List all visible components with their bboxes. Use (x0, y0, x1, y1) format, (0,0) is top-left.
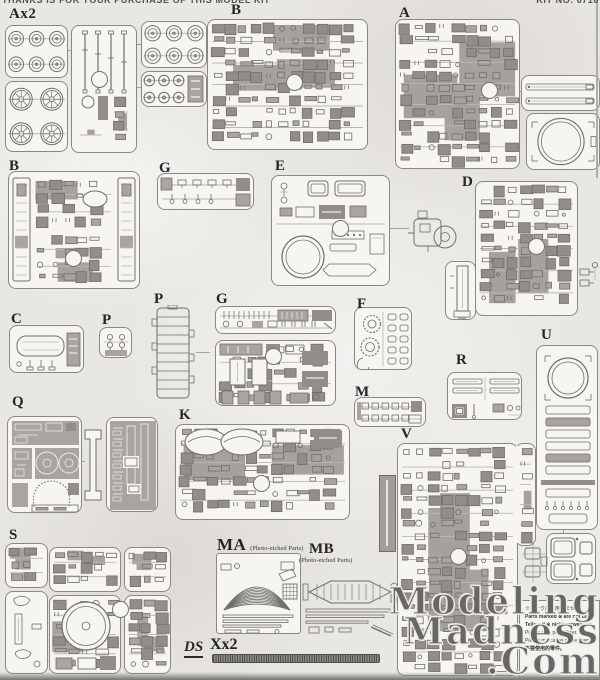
sprue-box-k (175, 424, 350, 520)
note-line: Parts marked ※ are not used. (525, 613, 595, 621)
sprue-box-g-small (157, 173, 254, 210)
parts-drawing (522, 76, 599, 110)
ds-track-logo: DS (184, 640, 203, 658)
photo-etch-fret-ma (216, 553, 301, 634)
scan-edge-artifact (596, 0, 598, 178)
parts-drawing (6, 544, 47, 587)
mb-subtitle: (Photo-etched Parts) (299, 557, 352, 564)
parts-drawing (547, 534, 595, 583)
parts-drawing (216, 307, 335, 333)
parts-drawing (142, 22, 206, 67)
runner-junction (253, 475, 270, 492)
barrel-sleeve-part (379, 475, 396, 552)
sprue-label-mb: MB (309, 541, 334, 558)
sprue-box-p-small (99, 327, 132, 358)
i-beam-part (82, 428, 104, 502)
instruction-sheet-page: THANKS IS FOR YOUR PURCHASE OF THIS MODE… (0, 0, 600, 680)
runner-junction (481, 82, 498, 99)
parts-drawing (9, 172, 139, 288)
parts-drawing (272, 176, 389, 285)
parts-drawing (537, 346, 597, 529)
sprue-label-m: M (355, 384, 370, 401)
turret-assembly-drawing (408, 206, 460, 258)
sprue-label-k: K (179, 407, 191, 424)
runner-junction (65, 250, 82, 267)
sprue-label-a: A (399, 5, 410, 22)
runner-line (388, 228, 409, 229)
parts-drawing (100, 328, 131, 357)
runner-junction (286, 74, 303, 91)
parts-drawing (408, 206, 460, 258)
sprue-label-p-small: P (102, 312, 112, 329)
runner-junction (112, 601, 129, 618)
sprue-box-a-turret-ring (526, 113, 600, 170)
sprue-box-m (354, 397, 426, 427)
note-line: Piezas marcadas no se usan. (525, 637, 595, 645)
parts-drawing (142, 72, 206, 106)
d-loose-parts (578, 260, 600, 292)
box-seam (516, 446, 520, 543)
sprue-box-d-barrel (445, 261, 476, 320)
parts-drawing (476, 182, 577, 315)
sprue-box-g-upper (215, 306, 336, 334)
ma-subtitle: (Photo-etched Parts) (250, 545, 303, 552)
parts-drawing (578, 260, 600, 292)
sprue-box-d (475, 181, 578, 316)
sprue-box-ax2-roadwheels-1 (5, 25, 68, 78)
parts-drawing (527, 114, 599, 169)
sprue-label-v: V (401, 426, 412, 443)
scan-bottom-shadow (0, 672, 600, 680)
sprue-box-s6 (124, 595, 171, 674)
note-line: Pièces à ne pas utiliser. (525, 629, 595, 637)
u-loose-parts (520, 542, 548, 582)
note-line: 不要使用的零件。 (525, 645, 595, 653)
sprue-label-c: C (11, 311, 22, 328)
sprue-box-u (536, 345, 598, 530)
sprue-box-f (354, 307, 412, 370)
sprue-box-ax2-discs (141, 71, 207, 107)
header-left-clipped-text: THANKS IS FOR YOUR PURCHASE OF THIS MODE… (2, 0, 332, 5)
header-kit-number-clipped: KIT NO. 6716 (489, 0, 599, 5)
parts-drawing (448, 373, 521, 419)
sprue-box-s5 (49, 595, 121, 674)
sprue-label-g-small: G (159, 160, 171, 177)
parts-drawing (355, 398, 425, 426)
parts-drawing (355, 308, 411, 369)
sprue-label-x-x2: Xx2 (210, 636, 238, 654)
parts-drawing (6, 592, 47, 673)
sprue-label-u: U (541, 327, 552, 344)
parts-drawing (6, 82, 67, 151)
parts-drawing (125, 596, 170, 673)
sprue-label-g-big: G (216, 291, 228, 308)
sprue-box-s2 (5, 591, 48, 674)
sprue-label-ax2: Ax2 (9, 6, 36, 23)
sprue-box-u-hatches (546, 533, 596, 584)
sprue-label-e: E (275, 158, 286, 175)
sprue-box-e (271, 175, 390, 286)
parts-drawing (158, 174, 253, 209)
runner-junction (332, 220, 349, 237)
parts-drawing (125, 548, 170, 591)
parts-drawing (520, 542, 548, 582)
parts-drawing (6, 26, 67, 77)
sprue-label-s: S (9, 527, 18, 544)
parts-drawing (72, 26, 136, 152)
photo-etch-fret-mb (301, 571, 398, 640)
parts-drawing (176, 425, 349, 519)
note-line: Teile mit ※ nicht verwenden. (525, 621, 595, 629)
sprue-box-s1 (5, 543, 48, 588)
sprue-label-r: R (456, 352, 467, 369)
runner-junction (91, 71, 108, 88)
parts-drawing (50, 548, 120, 591)
sprue-label-b-top: B (231, 2, 242, 19)
sprue-box-a-strips (521, 75, 600, 111)
runner-junction (265, 348, 282, 365)
sprue-box-s3 (49, 547, 121, 592)
parts-drawing (150, 305, 196, 402)
ds-track-strip (212, 654, 380, 663)
sprue-box-ax2-spoked-wheels (5, 81, 68, 152)
sprue-box-ax2-roadwheels-2 (141, 21, 207, 68)
sprue-box-r (447, 372, 522, 420)
sprue-label-ma: MA (Photo-etched Parts) (217, 535, 303, 555)
note-line: ※マークは使用しません。 (525, 605, 595, 613)
sprue-label-f: F (357, 296, 367, 313)
sprue-label-p-tall: P (154, 291, 164, 308)
parts-drawing (396, 20, 519, 168)
sprue-box-ax2-axles (71, 25, 137, 153)
sprue-box-s4 (124, 547, 171, 592)
sprue-box-b-mid (8, 171, 140, 289)
sprue-box-a-main (395, 19, 520, 169)
parts-drawing (50, 596, 120, 673)
sprue-box-c (9, 325, 84, 373)
sprue-box-p-tall (150, 305, 196, 402)
runner-junction (450, 548, 467, 565)
parts-drawing (10, 326, 83, 372)
parts-drawing (217, 554, 300, 633)
sprue-label-d: D (462, 174, 473, 191)
ma-letters: MA (217, 535, 245, 554)
sprue-box-q-tall (106, 417, 158, 512)
parts-drawing (8, 417, 81, 512)
unused-parts-note-box: ※マークは使用しません。 Parts marked ※ are not used… (519, 600, 600, 678)
parts-drawing (301, 571, 398, 640)
runner-junction (528, 238, 545, 255)
runner-line (196, 352, 210, 353)
parts-drawing (107, 418, 157, 511)
sprue-box-q (7, 416, 82, 513)
sprue-label-b-mid: B (9, 158, 20, 175)
parts-drawing (82, 428, 104, 502)
parts-drawing (446, 262, 475, 319)
sprue-label-q: Q (12, 394, 24, 411)
